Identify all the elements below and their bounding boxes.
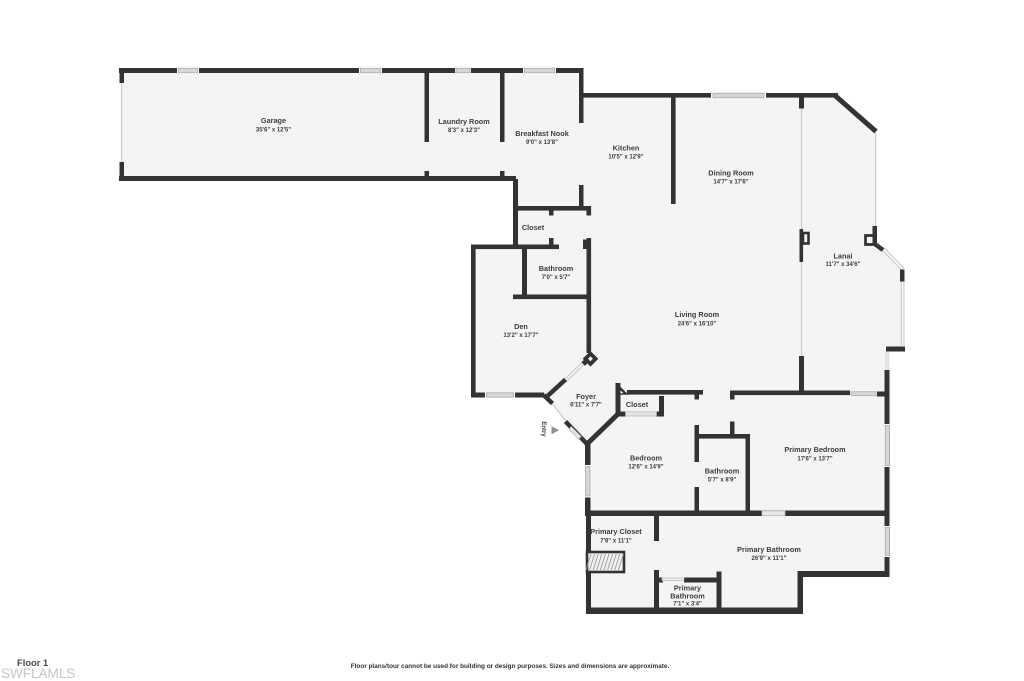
svg-text:Entry: Entry xyxy=(540,421,546,437)
svg-text:Kitchen: Kitchen xyxy=(613,144,640,153)
svg-text:Floor plans/tour cannot be use: Floor plans/tour cannot be used for buil… xyxy=(351,663,670,670)
svg-text:12'6" x 14'9": 12'6" x 14'9" xyxy=(628,465,663,471)
svg-text:Den: Den xyxy=(514,322,528,331)
svg-text:26'9" x 11'1": 26'9" x 11'1" xyxy=(752,556,787,562)
svg-text:Bathroom: Bathroom xyxy=(670,592,705,601)
svg-text:Garage: Garage xyxy=(261,116,286,125)
svg-text:Foyer: Foyer xyxy=(576,392,596,401)
svg-text:8'3" x 12'3": 8'3" x 12'3" xyxy=(448,128,480,134)
svg-text:7'1" x 3'4": 7'1" x 3'4" xyxy=(673,602,702,608)
svg-text:Primary Closet: Primary Closet xyxy=(590,527,642,536)
svg-text:13'2" x 17'7": 13'2" x 17'7" xyxy=(503,333,538,339)
svg-text:Primary Bathroom: Primary Bathroom xyxy=(737,545,801,554)
svg-text:Breakfast Nook: Breakfast Nook xyxy=(515,129,569,138)
svg-text:24'6" x 16'10": 24'6" x 16'10" xyxy=(678,322,717,328)
svg-text:10'5" x 12'9": 10'5" x 12'9" xyxy=(608,155,643,161)
svg-text:5'7" x 8'9": 5'7" x 8'9" xyxy=(708,478,737,484)
svg-text:Bathroom: Bathroom xyxy=(705,467,740,476)
svg-text:Closet: Closet xyxy=(522,223,545,232)
svg-text:7'0" x 5'7": 7'0" x 5'7" xyxy=(542,275,571,281)
svg-text:SWFLAMLS: SWFLAMLS xyxy=(1,666,75,681)
svg-text:6'11" x 7'7": 6'11" x 7'7" xyxy=(570,403,602,409)
svg-text:Dining Room: Dining Room xyxy=(708,169,754,178)
svg-text:Primary Bedroom: Primary Bedroom xyxy=(784,445,846,454)
svg-text:Bedroom: Bedroom xyxy=(630,454,663,463)
svg-text:Laundry Room: Laundry Room xyxy=(438,117,490,126)
svg-text:14'7" x 17'6": 14'7" x 17'6" xyxy=(713,180,748,186)
svg-text:Living Room: Living Room xyxy=(675,310,720,319)
svg-text:11'7" x 34'6": 11'7" x 34'6" xyxy=(826,262,861,268)
svg-text:Closet: Closet xyxy=(626,400,649,409)
svg-text:35'6" x 12'5": 35'6" x 12'5" xyxy=(256,128,291,134)
svg-text:9'0" x 13'8": 9'0" x 13'8" xyxy=(526,140,558,146)
svg-text:Bathroom: Bathroom xyxy=(539,264,574,273)
svg-text:7'8" x 11'1": 7'8" x 11'1" xyxy=(600,539,632,545)
svg-text:Lanai: Lanai xyxy=(833,252,852,261)
svg-text:17'6" x 13'7": 17'6" x 13'7" xyxy=(797,457,832,463)
